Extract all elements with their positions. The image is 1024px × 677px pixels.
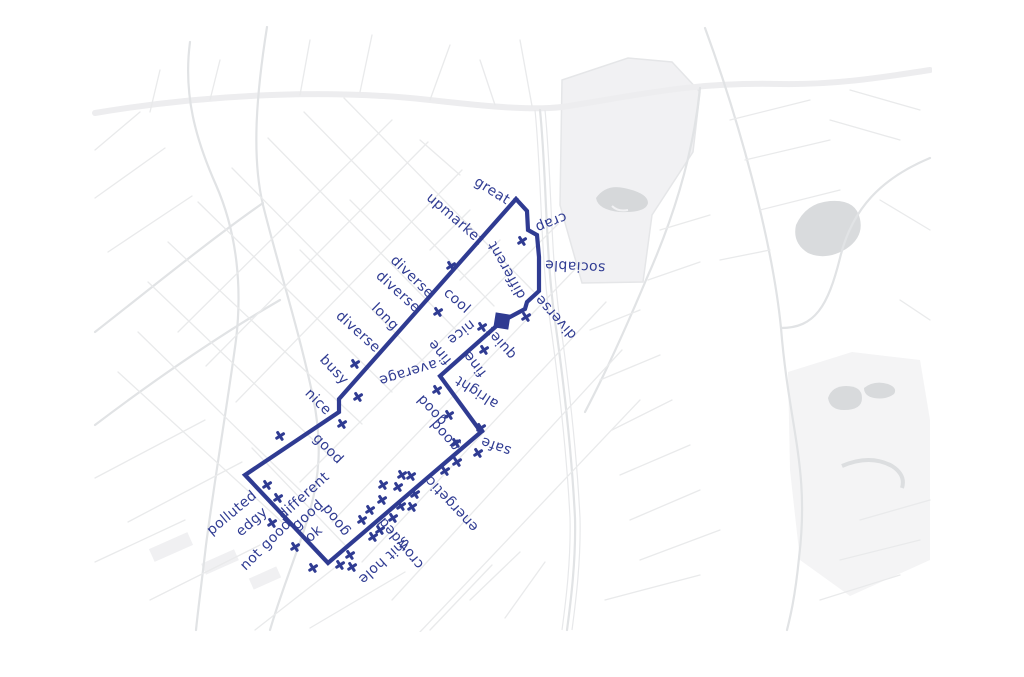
response-x-marker — [345, 560, 358, 573]
response-x-marker — [404, 469, 417, 482]
map-word-label: sociable — [544, 256, 605, 275]
response-x-marker — [438, 464, 451, 477]
response-x-marker — [405, 500, 418, 513]
response-x-marker — [288, 540, 301, 553]
response-x-marker — [391, 480, 404, 493]
map-visualization: greatupmarketcrapsociabledifferentdivers… — [0, 0, 1024, 677]
start-square-marker — [493, 312, 510, 329]
response-x-marker — [375, 493, 388, 506]
response-x-marker — [471, 446, 484, 459]
response-x-marker — [515, 234, 528, 247]
response-x-marker — [449, 436, 462, 449]
response-x-marker — [444, 259, 457, 272]
response-x-marker — [386, 511, 399, 524]
response-x-marker — [306, 561, 319, 574]
response-x-marker — [431, 305, 444, 318]
response-x-marker — [450, 455, 463, 468]
route-layer — [0, 0, 1024, 677]
response-x-marker — [333, 558, 346, 571]
response-x-marker — [343, 548, 356, 561]
response-x-marker — [430, 383, 443, 396]
response-x-marker — [363, 503, 376, 516]
response-x-marker — [442, 408, 455, 421]
response-x-marker — [475, 320, 488, 333]
response-x-marker — [348, 357, 361, 370]
response-x-marker — [519, 310, 532, 323]
response-x-marker — [351, 390, 364, 403]
response-x-marker — [355, 513, 368, 526]
response-x-marker — [271, 491, 284, 504]
response-x-marker — [477, 343, 490, 356]
response-x-marker — [265, 516, 278, 529]
response-x-marker — [376, 478, 389, 491]
response-x-marker — [366, 530, 379, 543]
response-x-marker — [408, 487, 421, 500]
response-x-marker — [273, 429, 286, 442]
response-x-marker — [474, 421, 487, 434]
response-x-marker — [335, 417, 348, 430]
response-x-marker — [260, 478, 273, 491]
